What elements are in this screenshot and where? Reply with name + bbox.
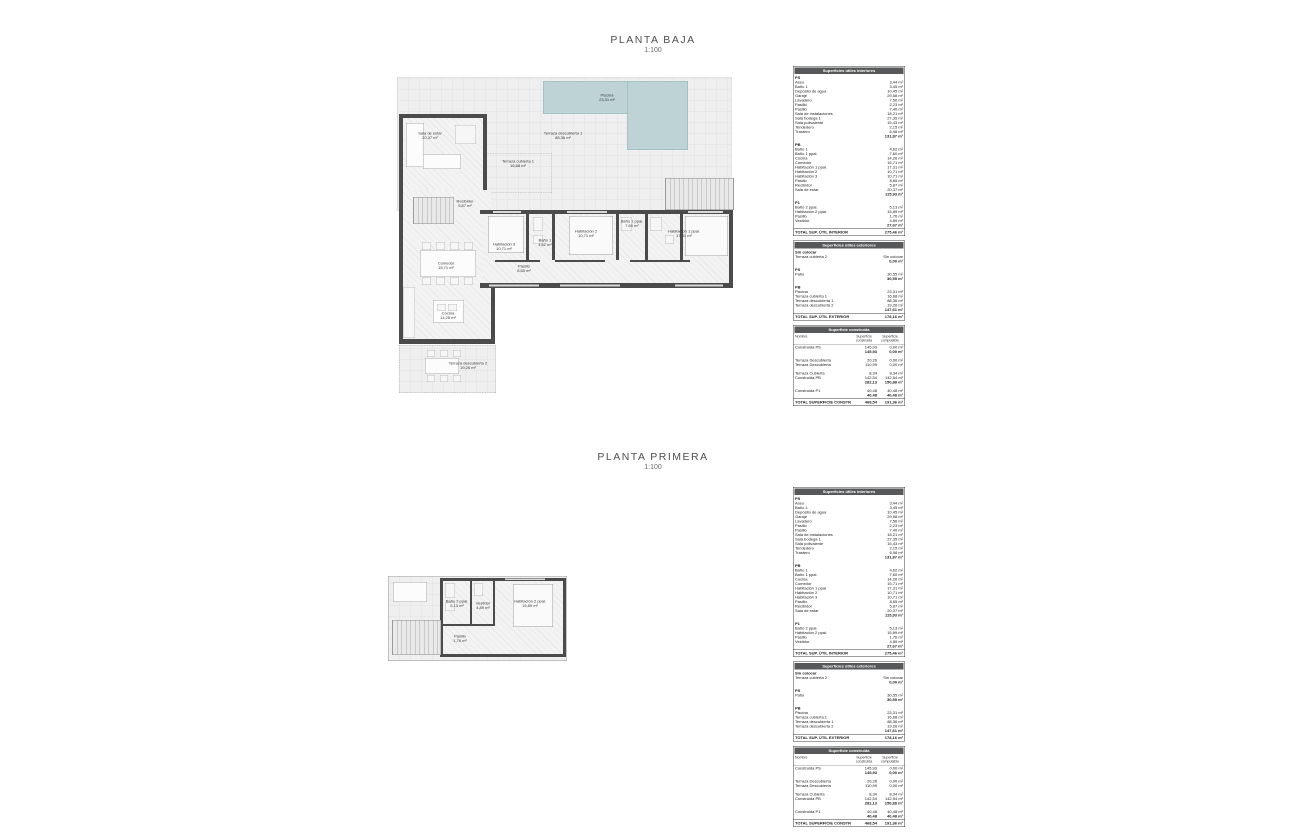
subtotal-row: 147,61 m²: [794, 729, 905, 734]
floor-plan-sheet: { "sheets": { "planta_baja": {"title": "…: [0, 0, 1290, 840]
subtotal-value: 131,87 m²: [885, 134, 903, 139]
bath-fixture: [533, 217, 543, 231]
total-label: TOTAL SUPERFICIE CONSTRUIDA:: [795, 821, 851, 826]
cell-value: 0,00 m²: [877, 363, 903, 368]
chair: [436, 277, 445, 285]
wall: [495, 260, 540, 262]
subtotal-value: 282,13: [851, 380, 877, 385]
cell-name: [795, 801, 851, 806]
chair: [440, 350, 448, 357]
total-row: TOTAL SUPERFICIE CONSTRUIDA:468,54191,36…: [794, 820, 905, 826]
room-label-terraza-descubierta-2: Terraza descubierta 219,26 m²: [449, 361, 487, 370]
cell-name: [795, 680, 889, 685]
subtotal-row: 30,55 m²: [794, 698, 905, 703]
room-label-habitacion-2: Habitación 210,71 m²: [575, 229, 597, 238]
table-title: Superficies útiles exteriores: [795, 663, 904, 670]
cell-name: [795, 698, 887, 703]
wall: [483, 114, 487, 190]
subtotal-row: 115,93 m²: [794, 192, 905, 197]
total-value: 191,36 m²: [877, 821, 903, 826]
stairs: [413, 197, 454, 224]
room-label-bano-2-ppal: Baño 2 ppal.5,13 m²: [446, 599, 468, 608]
wall: [552, 214, 555, 260]
subtotal-value: 27,67 m²: [887, 223, 903, 228]
cell-name: [795, 192, 885, 197]
room-label-bano-1: Baño 14,62 m²: [538, 238, 552, 247]
window: [567, 211, 607, 213]
wall: [493, 580, 495, 624]
subtotal-row: 30,55 m²: [794, 277, 905, 282]
wall: [526, 214, 529, 260]
plan-title: PLANTA BAJA: [543, 34, 763, 46]
sofa: [423, 154, 461, 169]
cell-name: [795, 729, 885, 734]
wall: [729, 210, 733, 288]
cell-name: Terraza Descubierta: [795, 363, 851, 368]
total-row: TOTAL SUP. ÚTIL EXTERIOR178,16 m²: [794, 734, 905, 740]
wardrobe: [474, 583, 483, 596]
cell-name: [795, 223, 887, 228]
total-value: 191,36 m²: [877, 400, 903, 405]
subtotal-row: 115,93 m²: [794, 613, 905, 618]
window: [688, 211, 723, 213]
wall: [440, 578, 566, 581]
stairs: [392, 620, 441, 655]
total-row: TOTAL SUP. ÚTIL INTERIOR275,46 m²: [794, 650, 905, 656]
room-label-sala-de-estar: Sala de estar20,37 m²: [418, 131, 442, 140]
subtotal-value: 40,48: [851, 393, 877, 398]
plan-scale: 1:100: [543, 464, 763, 471]
subtotal-value: 115,93 m²: [885, 192, 903, 197]
coffee-table: [455, 125, 476, 144]
total-value: 468,54: [851, 821, 877, 826]
subtotal-value: 115,93 m²: [885, 613, 903, 618]
room-label-pasillo-p1: Pasillo1,76 m²: [453, 634, 467, 643]
subtotal-row: 282,13150,88 m²: [794, 380, 905, 385]
col-header: Nombre: [795, 756, 851, 764]
window: [493, 211, 521, 213]
kitchen-counter: [403, 287, 415, 338]
total-row: TOTAL SUP. ÚTIL INTERIOR275,46 m²: [794, 229, 905, 235]
table-row: Terraza Descubierta110,990,00 m²: [794, 784, 905, 789]
chair: [427, 350, 435, 357]
subtotal-value: 40,48 m²: [877, 393, 903, 398]
subtotal-row: 131,87 m²: [794, 555, 905, 560]
pool-shape: [628, 82, 686, 112]
table-title: Superficies útiles interiores: [795, 489, 904, 496]
wall: [555, 260, 605, 262]
table-title: Superficies útiles interiores: [795, 68, 904, 75]
col-header: Superficie computable: [877, 756, 903, 764]
wall: [630, 260, 690, 262]
col-header: Superficie construida: [851, 756, 877, 764]
subtotal-row: 27,67 m²: [794, 223, 905, 228]
cell-name: [795, 308, 885, 313]
subtotal-row: 147,61 m²: [794, 308, 905, 313]
subtotal-row: 0,00 m²: [794, 259, 905, 264]
chair: [450, 277, 459, 285]
room-label-terraza-cubierta-1: Terraza cubierta 116,68 m²: [502, 159, 534, 168]
plan-title: PLANTA PRIMERA: [543, 451, 763, 463]
total-value: 275,46 m²: [885, 230, 903, 235]
room-label-cocina: Cocina14,26 m²: [440, 311, 456, 320]
subtotal-row: 27,67 m²: [794, 644, 905, 649]
subtotal-value: 150,88 m²: [877, 801, 903, 806]
total-label: TOTAL SUP. ÚTIL EXTERIOR: [795, 736, 885, 741]
cell-name: [795, 814, 851, 819]
wall: [470, 580, 472, 624]
cell-name: [795, 393, 851, 398]
cell-name: [795, 350, 851, 355]
window: [489, 285, 539, 287]
table-title: Superficies útiles exteriores: [795, 242, 904, 249]
subtotal-row: 131,87 m²: [794, 134, 905, 139]
wall: [616, 214, 619, 260]
total-row: TOTAL SUPERFICIE CONSTRUIDA:468,54191,36…: [794, 399, 905, 405]
surface-table-interior: Superficies útiles interioresPSAseo3,44 …: [793, 487, 905, 657]
room-label-terraza-descubierta-1: Terraza descubierta 188,36 m²: [544, 131, 582, 140]
subtotal-row: 145,930,00 m²: [794, 771, 905, 776]
subtotal-value: 282,13: [851, 801, 877, 806]
cell-name: [795, 644, 887, 649]
subtotal-row: 40,4840,48 m²: [794, 393, 905, 398]
surface-table-interior: Superficies útiles interioresPSAseo3,44 …: [793, 66, 905, 236]
chair: [427, 375, 435, 382]
cell-value: 110,99: [851, 363, 877, 368]
wall: [645, 214, 648, 260]
total-value: 275,46 m²: [885, 651, 903, 656]
cell-name: [795, 613, 885, 618]
subtotal-value: 147,61 m²: [885, 729, 903, 734]
subtotal-value: 40,48 m²: [877, 814, 903, 819]
total-value: 468,54: [851, 400, 877, 405]
room-label-habitacion-1-ppal: Habitación 1 ppal.17,31 m²: [668, 229, 700, 238]
surface-table-construida: Superficie construidaNombreSuperficie co…: [793, 746, 905, 827]
subtotal-value: 0,00 m²: [889, 680, 903, 685]
subtotal-value: 30,55 m²: [887, 698, 903, 703]
room-label-habitacion-2-ppal: Habitación 2 ppal.15,89 m²: [514, 599, 546, 608]
subtotal-value: 150,88 m²: [877, 380, 903, 385]
sheet-title-planta-primera: PLANTA PRIMERA 1:100: [543, 451, 763, 471]
col-header: Superficie construida: [851, 335, 877, 343]
table-title: Superficie construida: [795, 748, 904, 755]
surface-tables-planta-baja: Superficies útiles interioresPSAseo3,44 …: [793, 66, 905, 411]
wall: [563, 578, 566, 657]
subtotal-value: 0,00 m²: [877, 350, 903, 355]
table-row: Terraza Descubierta110,990,00 m²: [794, 363, 905, 368]
chair: [440, 375, 448, 382]
sheet-title-planta-baja: PLANTA BAJA 1:100: [543, 34, 763, 54]
sofa: [406, 123, 424, 167]
col-header: Superficie computable: [877, 335, 903, 343]
subtotal-value: 131,87 m²: [885, 555, 903, 560]
subtotal-value: 0,00 m²: [877, 771, 903, 776]
cell-name: [795, 134, 885, 139]
col-header: Nombre: [795, 335, 851, 343]
exterior-steps: [665, 178, 734, 210]
chair: [453, 350, 461, 357]
room-label-recibidor: Recibidor5,87 m²: [457, 199, 474, 208]
chair: [453, 375, 461, 382]
total-row: TOTAL SUP. ÚTIL EXTERIOR178,16 m²: [794, 313, 905, 319]
surface-table-exterior: Superficies útiles exterioresSin colocar…: [793, 662, 905, 742]
floor-plan-planta-primera: Baño 2 ppal.5,13 m² Vestidor4,89 m² Habi…: [385, 570, 570, 665]
table-column-headers: NombreSuperficie construidaSuperficie co…: [794, 335, 905, 345]
sofa: [393, 582, 427, 602]
subtotal-row: 40,4840,48 m²: [794, 814, 905, 819]
cell-value: 110,99: [851, 784, 877, 789]
floor-plan-planta-baja: Piscina23,31 m² Terraza descubierta 188,…: [395, 75, 735, 397]
cell-name: Terraza Descubierta: [795, 784, 851, 789]
subtotal-value: 0,00 m²: [889, 259, 903, 264]
chair: [436, 242, 445, 250]
table-title: Superficie construida: [795, 327, 904, 334]
chair: [450, 242, 459, 250]
subtotal-value: 40,48: [851, 814, 877, 819]
cell-name: [795, 771, 851, 776]
bath-fixture: [445, 583, 455, 598]
cell-value: 0,00 m²: [877, 784, 903, 789]
plan-scale: 1:100: [543, 47, 763, 54]
total-label: TOTAL SUP. ÚTIL EXTERIOR: [795, 315, 885, 320]
total-value: 178,16 m²: [885, 315, 903, 320]
cell-name: [795, 259, 889, 264]
room-label-comedor: Comedor15,71 m²: [438, 261, 454, 270]
subtotal-value: 145,93: [851, 771, 877, 776]
window: [675, 285, 723, 287]
surface-table-construida: Superficie construidaNombreSuperficie co…: [793, 325, 905, 406]
bath-fixture: [650, 217, 662, 231]
subtotal-value: 147,61 m²: [885, 308, 903, 313]
subtotal-value: 145,93: [851, 350, 877, 355]
wall: [442, 624, 495, 626]
window: [505, 579, 545, 581]
chair: [422, 277, 431, 285]
room-label-piscina: Piscina23,31 m²: [599, 93, 615, 102]
chair: [464, 277, 473, 285]
cell-name: [795, 555, 885, 560]
subtotal-value: 30,55 m²: [887, 277, 903, 282]
cell-name: [795, 380, 851, 385]
subtotal-row: 0,00 m²: [794, 680, 905, 685]
cell-name: [795, 277, 887, 282]
room-label-habitacion-3: Habitación 310,71 m²: [493, 242, 515, 251]
room-label-bano-1-ppal: Baño 1 ppal.7,60 m²: [621, 219, 643, 228]
hob: [448, 304, 457, 311]
surface-table-exterior: Superficies útiles exterioresSin colocar…: [793, 241, 905, 321]
window: [560, 285, 620, 287]
surface-tables-planta-primera: Superficies útiles interioresPSAseo3,44 …: [793, 487, 905, 832]
subtotal-row: 145,930,00 m²: [794, 350, 905, 355]
room-label-vestidor: Vestidor4,89 m²: [476, 601, 490, 610]
chair: [422, 242, 431, 250]
total-label: TOTAL SUP. ÚTIL INTERIOR: [795, 651, 885, 656]
total-label: TOTAL SUP. ÚTIL INTERIOR: [795, 230, 885, 235]
chair: [464, 242, 473, 250]
subtotal-value: 27,67 m²: [887, 644, 903, 649]
room-label-pasillo: Pasillo8,65 m²: [517, 264, 531, 273]
total-label: TOTAL SUPERFICIE CONSTRUIDA:: [795, 400, 851, 405]
table-column-headers: NombreSuperficie construidaSuperficie co…: [794, 756, 905, 766]
total-value: 178,16 m²: [885, 736, 903, 741]
subtotal-row: 282,13150,88 m²: [794, 801, 905, 806]
wall: [399, 339, 495, 344]
wall: [440, 654, 566, 657]
sink: [437, 304, 446, 311]
